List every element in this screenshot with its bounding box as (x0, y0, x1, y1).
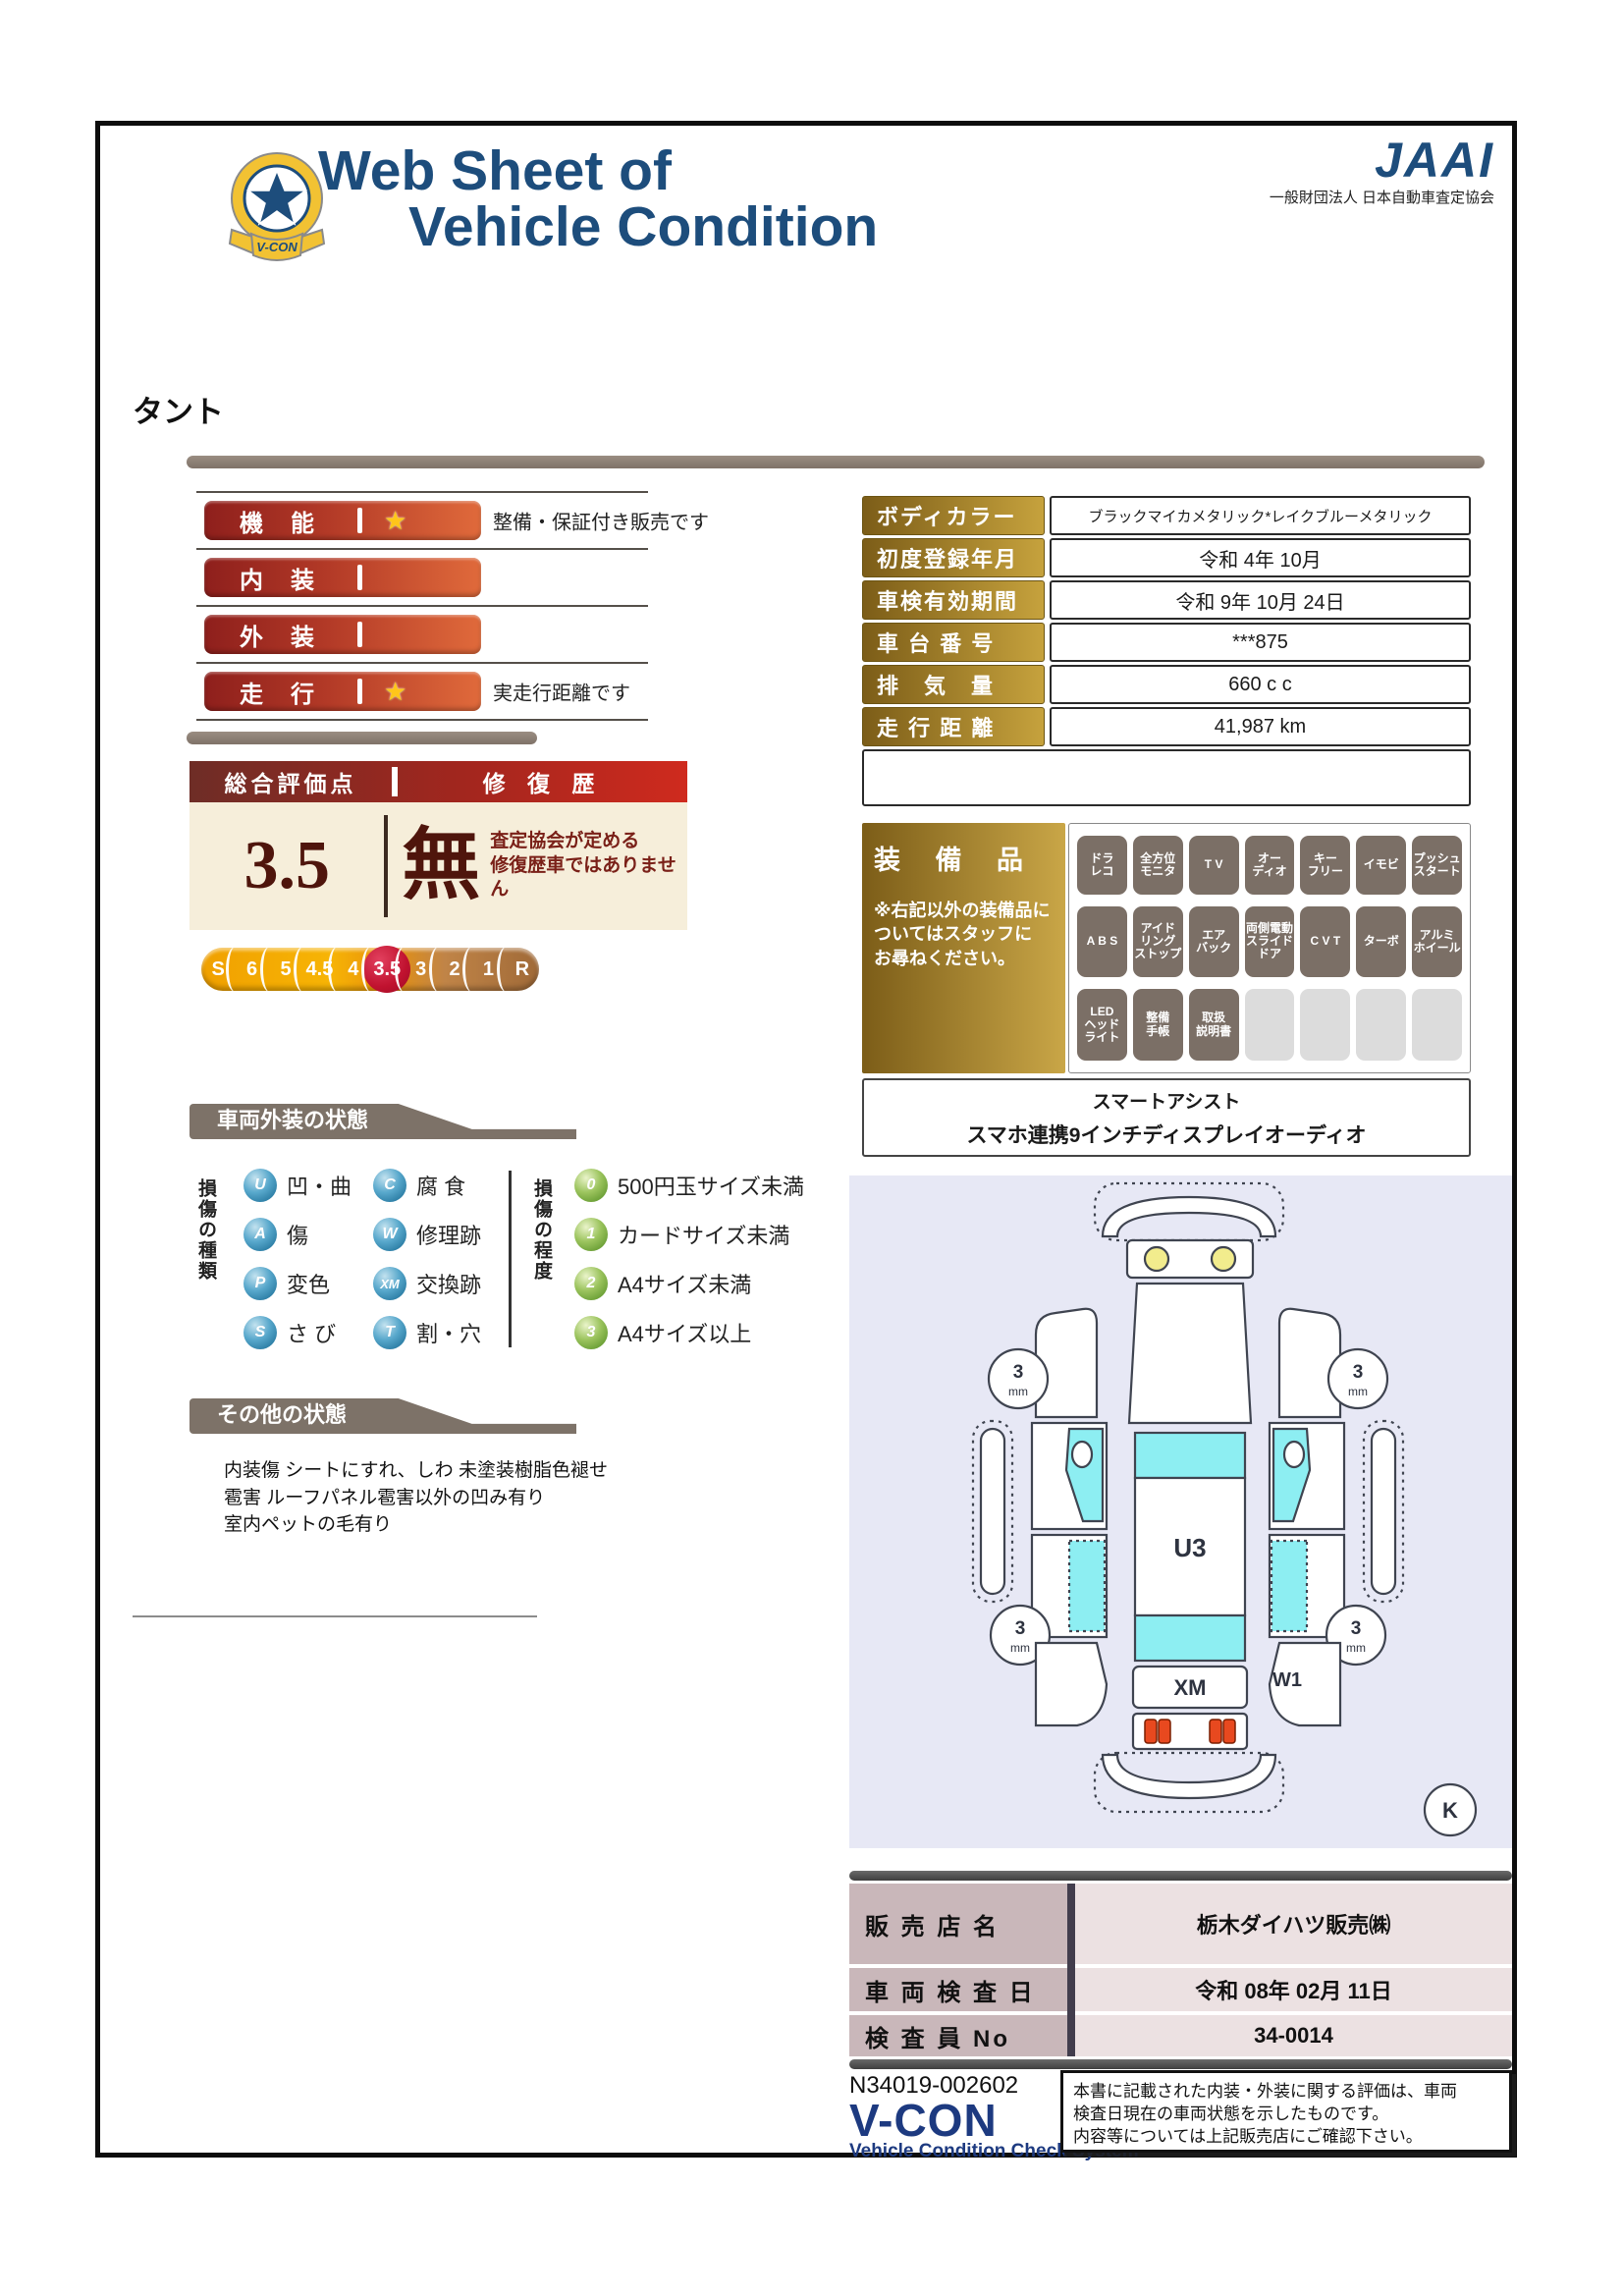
table-row: 車 両 検 査 日 令和 08年 02月 11日 (849, 1968, 1512, 2011)
vehicle-name: タント (133, 387, 224, 431)
rating-label: 走 行 (204, 675, 352, 709)
rating-label: 機 能 (204, 504, 352, 538)
tire-depth-unit: mm (1008, 1385, 1028, 1398)
degree-code-icon: 1 (574, 1218, 608, 1251)
repair-flag: 無 (402, 827, 480, 905)
rating-note: 整備・保証付き販売です (493, 507, 709, 535)
equipment-badge (1412, 989, 1462, 1061)
rating-bar: 機 能 ★ (204, 501, 481, 540)
detail-value: 660 c c (1050, 665, 1471, 704)
sales-value: 34-0014 (1075, 2015, 1512, 2056)
legend-label: 割・穴 (416, 1317, 481, 1348)
damage-code-icon: P (243, 1267, 277, 1300)
detail-label: ボディカラー (862, 496, 1045, 535)
sales-label: 販 売 店 名 (849, 1884, 1067, 1964)
equipment-badge: 全方位 モニタ (1133, 836, 1183, 895)
rating-pipe (357, 508, 362, 533)
rating-bar: 外 装 (204, 615, 481, 654)
jaai-organization: 一般財団法人 日本自動車査定協会 (1200, 187, 1494, 207)
vcon-wordmark: V-CON (849, 2094, 998, 2147)
tire-depth-unit: mm (1348, 1385, 1368, 1398)
detail-value: 41,987 km (1050, 707, 1471, 746)
degree-code-icon: 2 (574, 1267, 608, 1300)
vcon-badge-text: V-CON (256, 240, 298, 254)
score-scale: S 6 5 4.5 4 3.5 3 2 1 R (201, 948, 539, 991)
rating-row-mileage: 走 行 ★ 実走行距離です (196, 662, 648, 721)
rating-label: 外 装 (204, 618, 352, 652)
divider-bar-left (187, 732, 537, 744)
legend-item: 3 A4サイズ以上 (574, 1316, 751, 1349)
table-row: 排 気 量 660 c c (862, 665, 1471, 704)
star-icon: ★ (384, 506, 406, 536)
table-row: 車検有効期間 令和 9年 10月 24日 (862, 580, 1471, 620)
rating-bar: 内 装 (204, 558, 481, 597)
detail-label: 排 気 量 (862, 665, 1045, 704)
detail-label: 車 台 番 号 (862, 623, 1045, 662)
rear-damage-mark: XM (1174, 1675, 1207, 1700)
damage-code-icon: S (243, 1316, 277, 1349)
tire-depth-unit: mm (1346, 1641, 1366, 1655)
legend-label: 500円玉サイズ未満 (618, 1170, 804, 1201)
equipment-extra-box: スマートアシスト スマホ連携9インチディスプレイオーディオ (862, 1078, 1471, 1157)
overall-body: 3.5 無 査定協会が定める 修復歴車ではありません (189, 802, 687, 930)
tire-depth-value: 3 (1015, 1618, 1026, 1639)
legend-label: 交換跡 (416, 1268, 481, 1299)
equipment-badge: アルミ ホイール (1412, 906, 1462, 978)
legend-label: A4サイズ未満 (618, 1268, 751, 1299)
legend-item: T 割・穴 (373, 1316, 481, 1349)
detail-label: 走 行 距 離 (862, 707, 1045, 746)
detail-value: ブラックマイカメタリック*レイクブルーメタリック (1050, 496, 1471, 535)
sales-value: 令和 08年 02月 11日 (1075, 1968, 1512, 2011)
repair-note: 査定協会が定める 修復歴車ではありません (490, 830, 687, 902)
quarter-damage-mark: W1 (1272, 1669, 1302, 1691)
damage-code-icon: U (243, 1169, 277, 1202)
table-row: 初度登録年月 令和 4年 10月 (862, 538, 1471, 577)
equipment-badge: T V (1189, 836, 1239, 895)
legend-item: 1 カードサイズ未満 (574, 1218, 789, 1251)
equipment-section: 装 備 品 ※右記以外の装備品に ついてはスタッフに お尋ねください。 ドラ レ… (862, 823, 1471, 1073)
equipment-title-panel: 装 備 品 ※右記以外の装備品に ついてはスタッフに お尋ねください。 (862, 823, 1065, 1073)
equipment-badge (1356, 989, 1406, 1061)
equipment-extra-line2: スマホ連携9インチディスプレイオーディオ (966, 1120, 1366, 1149)
legend-label: 修理跡 (416, 1219, 481, 1250)
damage-code-icon: XM (373, 1267, 406, 1300)
table-row: 検 査 員 No 34-0014 (849, 2015, 1512, 2056)
damage-code-icon: T (373, 1316, 406, 1349)
equipment-title: 装 備 品 (874, 839, 1054, 877)
rating-row-interior: 内 装 (196, 548, 648, 605)
legend-item: 0 500円玉サイズ未満 (574, 1169, 804, 1202)
equipment-badge-grid: ドラ レコ 全方位 モニタ T V オー ディオ キー フリー イモビ プッシュ… (1068, 823, 1471, 1073)
other-state-banner: その他の状態 (189, 1398, 576, 1434)
equipment-badge: プッシュ スタート (1412, 836, 1462, 895)
rating-row-exterior: 外 装 (196, 605, 648, 662)
legend-label: 凹・曲 (287, 1170, 352, 1201)
divider-bar-top (187, 456, 1485, 468)
sales-table-bottom-bar (849, 2059, 1512, 2069)
legend-label: さ び (287, 1317, 336, 1348)
equipment-badge: LED ヘッド ライト (1077, 989, 1127, 1061)
vehicle-details-table: ボディカラー ブラックマイカメタリック*レイクブルーメタリック 初度登録年月 令… (862, 496, 1471, 806)
overall-score-box: 総合評価点 修 復 歴 3.5 無 査定協会が定める 修復歴車ではありません (189, 761, 687, 930)
equipment-badge: C V T (1300, 906, 1350, 978)
star-icon: ★ (384, 677, 406, 707)
damage-code-icon: W (373, 1218, 406, 1251)
equipment-badge: 取扱 説明書 (1189, 989, 1239, 1061)
legend-item: XM 交換跡 (373, 1267, 481, 1300)
equipment-badge: オー ディオ (1245, 836, 1295, 895)
rating-bar: 走 行 ★ (204, 672, 481, 711)
sales-table-top-bar (849, 1871, 1512, 1881)
equipment-badge (1245, 989, 1295, 1061)
overall-score-title: 総合評価点 (189, 765, 392, 798)
table-row: 走 行 距 離 41,987 km (862, 707, 1471, 746)
sales-label: 検 査 員 No (849, 2015, 1067, 2056)
corner-mark: K (1442, 1798, 1458, 1823)
rating-row-function: 機 能 ★ 整備・保証付き販売です (196, 491, 648, 548)
rating-pipe (357, 565, 362, 590)
equipment-badge: キー フリー (1300, 836, 1350, 895)
title-line2: Vehicle Condition (408, 199, 878, 255)
exterior-state-banner: 車両外装の状態 (189, 1104, 576, 1139)
rating-note: 実走行距離です (493, 678, 630, 706)
vehicle-condition-sheet: { "header": { "title_line1": "Web Sheet … (0, 0, 1623, 2296)
overall-score-value: 3.5 (189, 827, 384, 905)
legend-divider (509, 1171, 512, 1347)
degree-code-icon: 0 (574, 1169, 608, 1202)
damage-type-label: 損傷の種類 (192, 1178, 219, 1282)
tire-depth-unit: mm (1010, 1641, 1030, 1655)
overall-body-divider (384, 815, 388, 917)
sales-info-table: 販 売 店 名 栃木ダイハツ販売㈱ 車 両 検 査 日 令和 08年 02月 1… (849, 1871, 1512, 2069)
detail-label: 車検有効期間 (862, 580, 1045, 620)
detail-empty-row (862, 749, 1471, 806)
equipment-badge: 整備 手帳 (1133, 989, 1183, 1061)
damage-degree-label: 損傷の程度 (528, 1178, 555, 1282)
rating-label: 内 装 (204, 561, 352, 595)
damage-code-icon: A (243, 1218, 277, 1251)
roof-damage-mark: U3 (1173, 1533, 1206, 1562)
car-damage-diagram: U3 XM W1 3 3 3 3 mm mm mm mm K (849, 1175, 1512, 1848)
detail-label: 初度登録年月 (862, 538, 1045, 577)
title-line1: Web Sheet of (318, 139, 672, 202)
damage-code-icon: C (373, 1169, 406, 1202)
table-row: 車 台 番 号 ***875 (862, 623, 1471, 662)
equipment-badge: ドラ レコ (1077, 836, 1127, 895)
equipment-note: ※右記以外の装備品に ついてはスタッフに お尋ねください。 (874, 899, 1054, 970)
legend-item: C 腐 食 (373, 1169, 465, 1202)
equipment-badge: イモビ (1356, 836, 1406, 895)
equipment-badge: エア バック (1189, 906, 1239, 978)
equipment-badge (1300, 989, 1350, 1061)
disclaimer-box: 本書に記載された内装・外装に関する評価は、車両 検査日現在の車両状態を示したもの… (1060, 2070, 1512, 2153)
equipment-extra-line1: スマートアシスト (1093, 1087, 1241, 1114)
rating-pipe (357, 679, 362, 704)
other-state-text: 内装傷 シートにすれ、しわ 未塗装樹脂色褪せ 雹害 ルーフパネル雹害以外の凹み有… (224, 1457, 608, 1539)
legend-item: P 変色 (243, 1267, 330, 1300)
legend-item: U 凹・曲 (243, 1169, 352, 1202)
legend-item: S さ び (243, 1316, 336, 1349)
rating-pipe (357, 622, 362, 647)
table-row: 販 売 店 名 栃木ダイハツ販売㈱ (849, 1884, 1512, 1964)
legend-label: カードサイズ未満 (618, 1219, 789, 1250)
legend-label: 腐 食 (416, 1170, 465, 1201)
equipment-badge: 両側電動 スライド ドア (1245, 906, 1295, 978)
legend-item: W 修理跡 (373, 1218, 481, 1251)
tire-depth-value: 3 (1351, 1618, 1362, 1639)
equipment-badge: A B S (1077, 906, 1127, 978)
left-column-rule (133, 1615, 537, 1617)
legend-label: A4サイズ以上 (618, 1317, 751, 1348)
sales-table-divider (1067, 1884, 1075, 2056)
rating-rows: 機 能 ★ 整備・保証付き販売です 内 装 外 装 走 行 (196, 491, 648, 721)
jaai-logo: JAAI (1200, 136, 1494, 185)
legend-item: A 傷 (243, 1218, 308, 1251)
sales-label: 車 両 検 査 日 (849, 1968, 1067, 2011)
table-row: ボディカラー ブラックマイカメタリック*レイクブルーメタリック (862, 496, 1471, 535)
legend-item: 2 A4サイズ未満 (574, 1267, 751, 1300)
jaai-logo-block: JAAI 一般財団法人 日本自動車査定協会 (1200, 136, 1494, 207)
equipment-badge: アイド リング ストップ (1133, 906, 1183, 978)
legend-label: 傷 (287, 1219, 308, 1250)
legend-label: 変色 (287, 1268, 330, 1299)
tire-depth-value: 3 (1013, 1362, 1024, 1383)
tire-depth-value: 3 (1353, 1362, 1364, 1383)
detail-value: 令和 9年 10月 24日 (1050, 580, 1471, 620)
detail-value: 令和 4年 10月 (1050, 538, 1471, 577)
equipment-badge: ターボ (1356, 906, 1406, 978)
page-title: Web Sheet of Vehicle Condition (318, 143, 878, 255)
degree-code-icon: 3 (574, 1316, 608, 1349)
sales-value: 栃木ダイハツ販売㈱ (1075, 1884, 1512, 1964)
detail-value: ***875 (1050, 623, 1471, 662)
overall-header: 総合評価点 修 復 歴 (189, 761, 687, 802)
document-sheet: V-CON Web Sheet of Vehicle Condition JAA… (95, 121, 1517, 2158)
scale-item: R (506, 958, 539, 981)
repair-history-title: 修 復 歴 (398, 765, 687, 798)
